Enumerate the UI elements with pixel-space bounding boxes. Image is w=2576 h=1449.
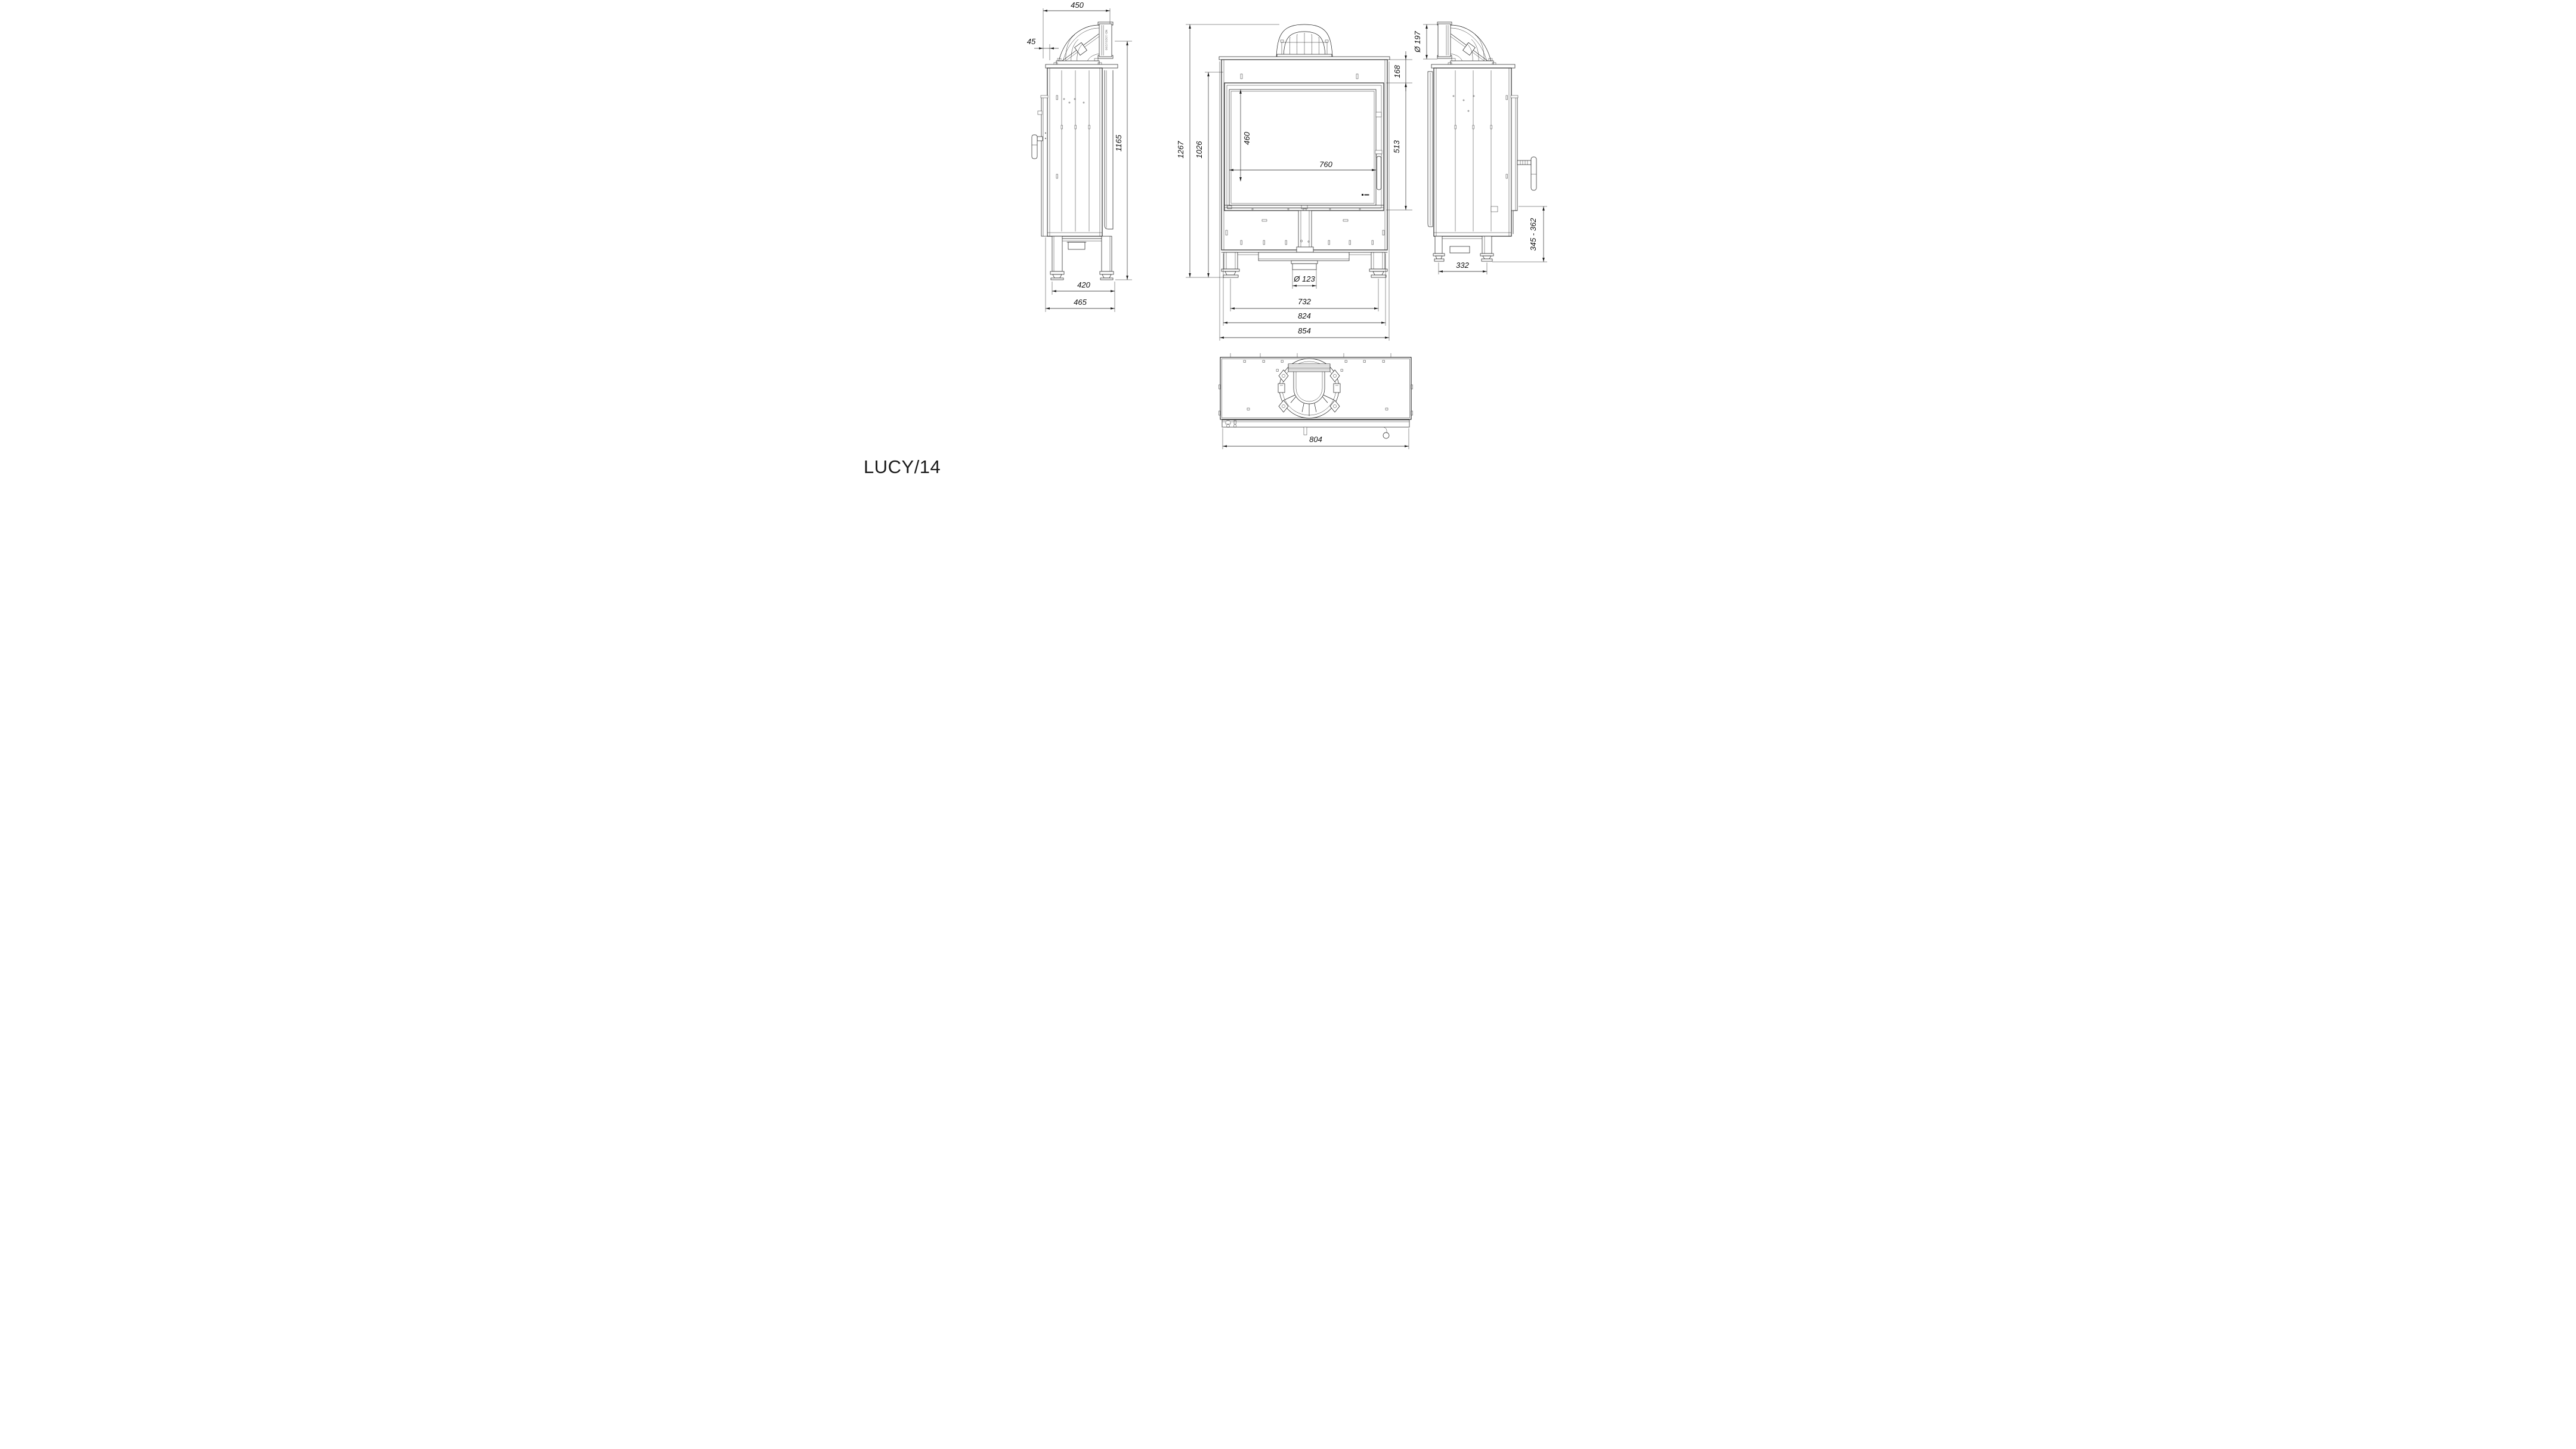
dim-front-top-to-glass: 168 — [1393, 64, 1402, 78]
left-view-legs — [1050, 236, 1114, 280]
door-handle-left-icon — [1032, 135, 1043, 159]
dim-top-width: 804 — [1309, 435, 1322, 444]
dim-right-feet-span: 332 — [1456, 261, 1469, 270]
top-view-body — [1219, 353, 1412, 438]
flue-dome-icon — [1276, 24, 1333, 58]
dim-front-overall-width: 854 — [1298, 326, 1311, 335]
outlet-pipe — [1291, 261, 1318, 270]
dim-left-depth: 465 — [1074, 298, 1087, 307]
model-name: LUCY/14 — [864, 456, 941, 477]
dim-front-base-width: 824 — [1298, 311, 1311, 320]
dim-front-casing-height: 1026 — [1195, 141, 1204, 159]
dim-left-front-offset: 45 — [1026, 37, 1035, 46]
flue-elbow-right-icon — [1437, 22, 1496, 65]
front-view-legs — [1221, 252, 1387, 277]
top-view: 804 — [1219, 353, 1412, 449]
flue-elbow-left-icon: ND-10201/200 — [1054, 22, 1113, 65]
dim-front-glass-height: 460 — [1242, 131, 1251, 144]
dim-right-flue-dia: Ø 197 — [1413, 31, 1422, 53]
dim-front-glass-width: 760 — [1319, 160, 1332, 169]
dim-front-total-height: 1267 — [1176, 141, 1185, 159]
front-view-body — [1217, 57, 1390, 277]
technical-drawing-page: ND-10201/200 — [859, 0, 1718, 483]
dim-left-height: 1165 — [1114, 134, 1123, 152]
left-side-view: ND-10201/200 — [1026, 1, 1131, 312]
right-side-view: Ø 197 345 - 362 332 — [1413, 22, 1547, 274]
top-view-dimensions: 804 — [1223, 428, 1409, 449]
glass-door — [1224, 83, 1384, 211]
door-handle-right-icon — [1517, 157, 1536, 190]
flue-part-label: ND-10201/200 — [1104, 30, 1108, 51]
left-view-body — [1032, 64, 1118, 280]
handle-ring-icon — [1383, 427, 1389, 438]
dim-front-door-height: 513 — [1392, 140, 1401, 153]
front-view: 1267 1026 168 513 460 760 Ø 123 — [1176, 24, 1412, 341]
dim-left-top-width: 450 — [1071, 1, 1084, 10]
dim-front-outlet-dia: Ø 123 — [1293, 274, 1315, 283]
right-view-body — [1428, 64, 1536, 261]
right-view-legs — [1433, 236, 1511, 261]
dim-right-base-height: 345 - 362 — [1529, 218, 1538, 251]
dim-left-feet-width: 420 — [1077, 280, 1090, 289]
dim-front-feet-span: 732 — [1298, 297, 1311, 306]
fireplace-dimension-drawing: ND-10201/200 — [859, 0, 1718, 483]
